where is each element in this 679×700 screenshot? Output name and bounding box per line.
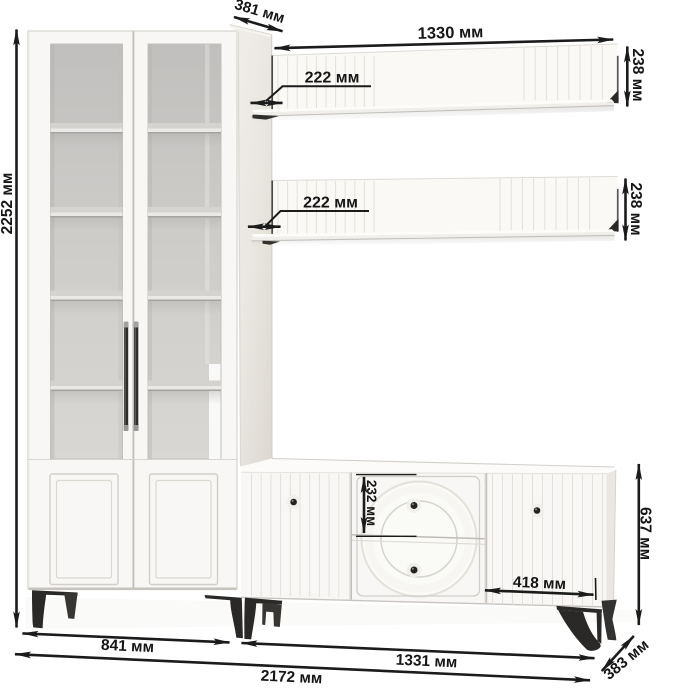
svg-text:232 мм: 232 мм [364, 480, 379, 526]
svg-text:1330 мм: 1330 мм [417, 23, 483, 43]
svg-text:1331 мм: 1331 мм [395, 652, 457, 672]
svg-text:2252 мм: 2252 мм [0, 173, 16, 235]
svg-text:222 мм: 222 мм [303, 195, 358, 212]
svg-text:2172 мм: 2172 мм [260, 668, 322, 688]
svg-text:238 мм: 238 мм [627, 182, 644, 235]
svg-text:222 мм: 222 мм [305, 70, 360, 87]
svg-text:238 мм: 238 мм [629, 48, 646, 101]
svg-text:637 мм: 637 мм [637, 507, 654, 560]
svg-text:841 мм: 841 мм [101, 637, 155, 656]
svg-text:418 мм: 418 мм [513, 574, 567, 593]
